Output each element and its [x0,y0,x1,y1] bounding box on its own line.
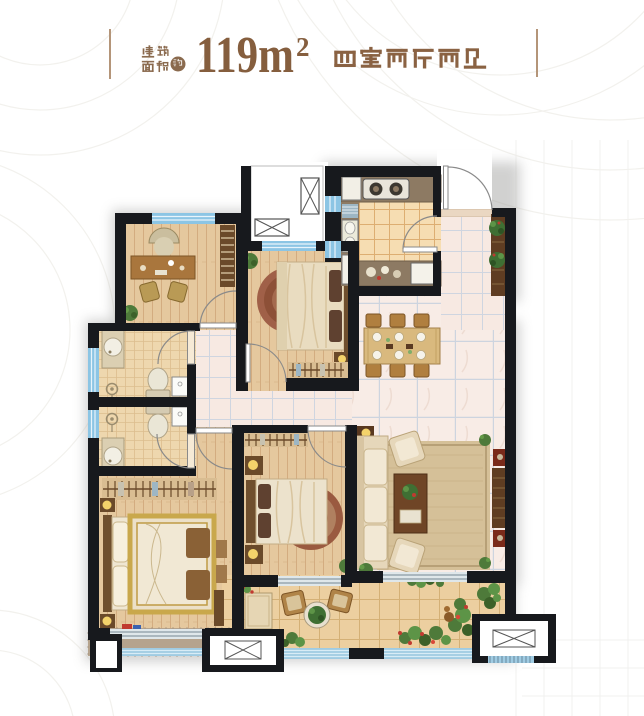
svg-text:119m: 119m [196,27,294,84]
svg-text:2: 2 [296,32,310,62]
